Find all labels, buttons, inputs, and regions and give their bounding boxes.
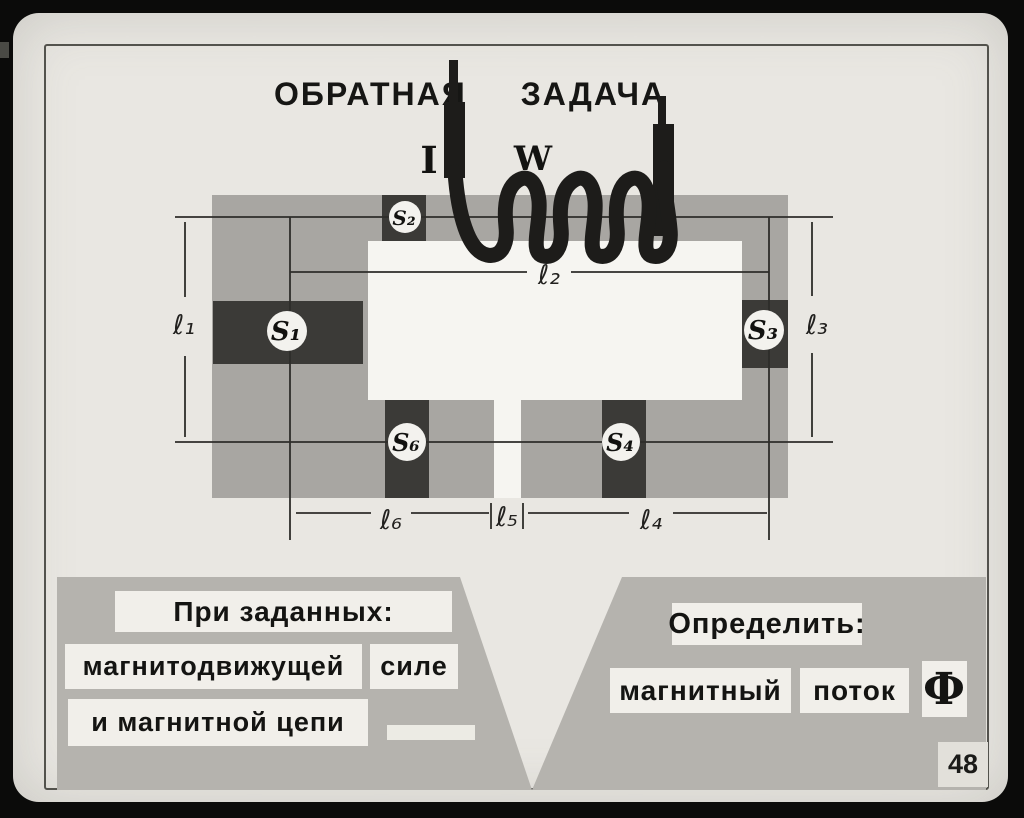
length-label-l3: ℓ₃ xyxy=(805,310,828,341)
given-line-2a: магнитодвижущей xyxy=(65,644,362,689)
core-bottom-right xyxy=(521,400,788,498)
core-bottom-left xyxy=(212,400,494,498)
section-label-left: S₁ xyxy=(271,317,301,347)
section-label-right: S₃ xyxy=(748,316,778,346)
winding-label: W xyxy=(513,139,553,179)
air-gap xyxy=(494,400,521,498)
length-label-l6: ℓ₆ xyxy=(379,505,402,536)
section-label-bottom-left: S₆ xyxy=(392,428,420,457)
given-panel: При заданных: магнитодвижущей силе и маг… xyxy=(57,577,532,790)
given-line-1: При заданных: xyxy=(115,591,452,632)
find-line-1: Определить: xyxy=(672,603,862,645)
flux-symbol: Ф xyxy=(922,661,967,717)
length-label-l1: ℓ₁ xyxy=(172,310,195,341)
section-label-bottom-right: S₄ xyxy=(606,428,634,457)
find-line-2a: магнитный xyxy=(610,668,791,713)
given-line-3: и магнитной цепи xyxy=(68,699,368,746)
length-label-l2: ℓ₂ xyxy=(537,260,560,291)
left-lead-wire xyxy=(449,60,458,108)
page-number: 48 xyxy=(938,742,988,787)
film-frame: ОБРАТНАЯ ЗАДАЧА xyxy=(0,0,1024,818)
length-label-l5: ℓ₅ xyxy=(495,502,518,533)
given-dash xyxy=(387,725,475,740)
length-label-l4: ℓ₄ xyxy=(639,505,662,536)
section-label-top: S₂ xyxy=(392,206,415,230)
current-label: I xyxy=(420,138,437,182)
find-line-2b: поток xyxy=(800,668,909,713)
given-line-2b: силе xyxy=(370,644,458,689)
